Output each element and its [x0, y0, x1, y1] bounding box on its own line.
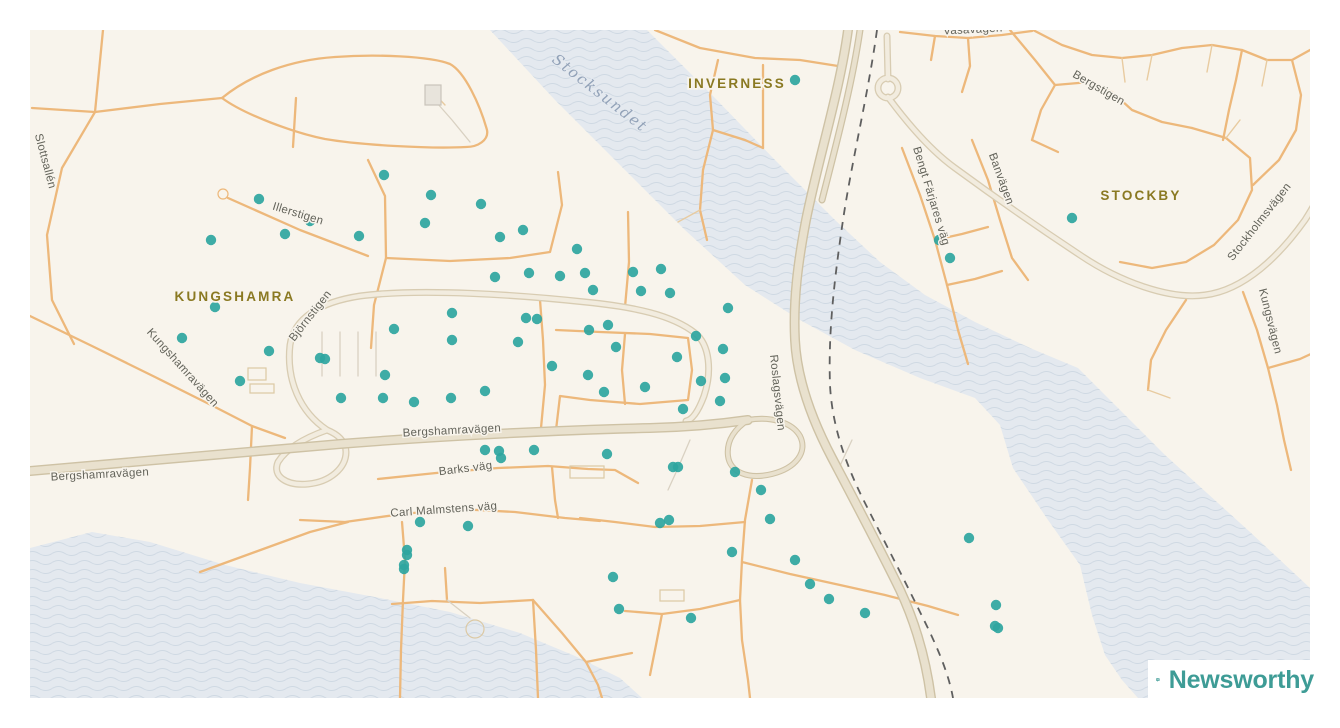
street-label-illerstigen: Illerstigen [271, 201, 325, 228]
data-point [673, 462, 683, 472]
data-point [599, 387, 609, 397]
place-label-stockby: STOCKBY [1100, 188, 1181, 203]
data-point [602, 449, 612, 459]
data-point [696, 376, 706, 386]
data-point [521, 313, 531, 323]
data-point [354, 231, 364, 241]
data-point [463, 521, 473, 531]
cul-de-sac-circle [218, 189, 228, 199]
data-point [718, 344, 728, 354]
data-point [320, 354, 330, 364]
data-point [235, 376, 245, 386]
place-label-kungshamra: KUNGSHAMRA [175, 289, 296, 304]
data-point [420, 218, 430, 228]
data-point [824, 594, 834, 604]
data-point [636, 286, 646, 296]
data-point [378, 393, 388, 403]
data-point [628, 267, 638, 277]
data-point [790, 75, 800, 85]
data-point [402, 550, 412, 560]
data-point [756, 485, 766, 495]
data-point [547, 361, 557, 371]
data-point [177, 333, 187, 343]
map-canvas[interactable]: Slottsallén Illerstigen Kungshamravägen … [30, 30, 1310, 698]
data-point [715, 396, 725, 406]
data-point [280, 229, 290, 239]
street-label-slottsallen: Slottsallén [32, 132, 58, 190]
data-point [415, 517, 425, 527]
data-point [691, 331, 701, 341]
data-point [964, 533, 974, 543]
data-point [336, 393, 346, 403]
street-label-carl-malmstens-vag: Carl Malmstens väg [390, 500, 498, 519]
data-point [611, 342, 621, 352]
data-point [583, 370, 593, 380]
data-point [447, 308, 457, 318]
street-label-barks-vag: Barks väg [438, 460, 493, 478]
data-point [588, 285, 598, 295]
data-point [206, 235, 216, 245]
data-point [496, 453, 506, 463]
data-point [664, 515, 674, 525]
data-point [476, 199, 486, 209]
data-point [380, 370, 390, 380]
data-point [389, 324, 399, 334]
data-point [518, 225, 528, 235]
data-point [480, 445, 490, 455]
data-point [447, 335, 457, 345]
map-svg: Slottsallén Illerstigen Kungshamravägen … [30, 30, 1310, 698]
data-point [399, 564, 409, 574]
data-point [790, 555, 800, 565]
data-point [723, 303, 733, 313]
data-point [409, 397, 419, 407]
data-point [656, 264, 666, 274]
data-point [426, 190, 436, 200]
newsworthy-logo-text: Newsworthy [1169, 666, 1314, 695]
data-point [584, 325, 594, 335]
data-point [640, 382, 650, 392]
data-point [805, 579, 815, 589]
screenshot-stage: Slottsallén Illerstigen Kungshamravägen … [0, 0, 1340, 728]
data-point [730, 467, 740, 477]
data-point [860, 608, 870, 618]
data-point [608, 572, 618, 582]
data-point [614, 604, 624, 614]
data-point [572, 244, 582, 254]
place-label-inverness: INVERNESS [688, 76, 786, 91]
data-point [678, 404, 688, 414]
newsworthy-logo-icon [1156, 662, 1160, 698]
data-point [993, 623, 1003, 633]
water-areas [30, 30, 1310, 698]
data-point [1067, 213, 1077, 223]
data-point [532, 314, 542, 324]
data-point [529, 445, 539, 455]
data-point [264, 346, 274, 356]
newsworthy-attribution: Newsworthy [1148, 660, 1314, 700]
street-label-bergstigen: Bergstigen [1070, 69, 1126, 108]
data-point [555, 271, 565, 281]
data-point [665, 288, 675, 298]
data-point [524, 268, 534, 278]
data-point [446, 393, 456, 403]
data-point [254, 194, 264, 204]
data-point [765, 514, 775, 524]
data-point [991, 600, 1001, 610]
data-point [513, 337, 523, 347]
data-point [480, 386, 490, 396]
data-point [580, 268, 590, 278]
data-point [686, 613, 696, 623]
data-point [603, 320, 613, 330]
data-point [727, 547, 737, 557]
data-point [495, 232, 505, 242]
data-point [655, 518, 665, 528]
data-point [945, 253, 955, 263]
data-point [379, 170, 389, 180]
data-point [720, 373, 730, 383]
data-point [672, 352, 682, 362]
data-point [490, 272, 500, 282]
